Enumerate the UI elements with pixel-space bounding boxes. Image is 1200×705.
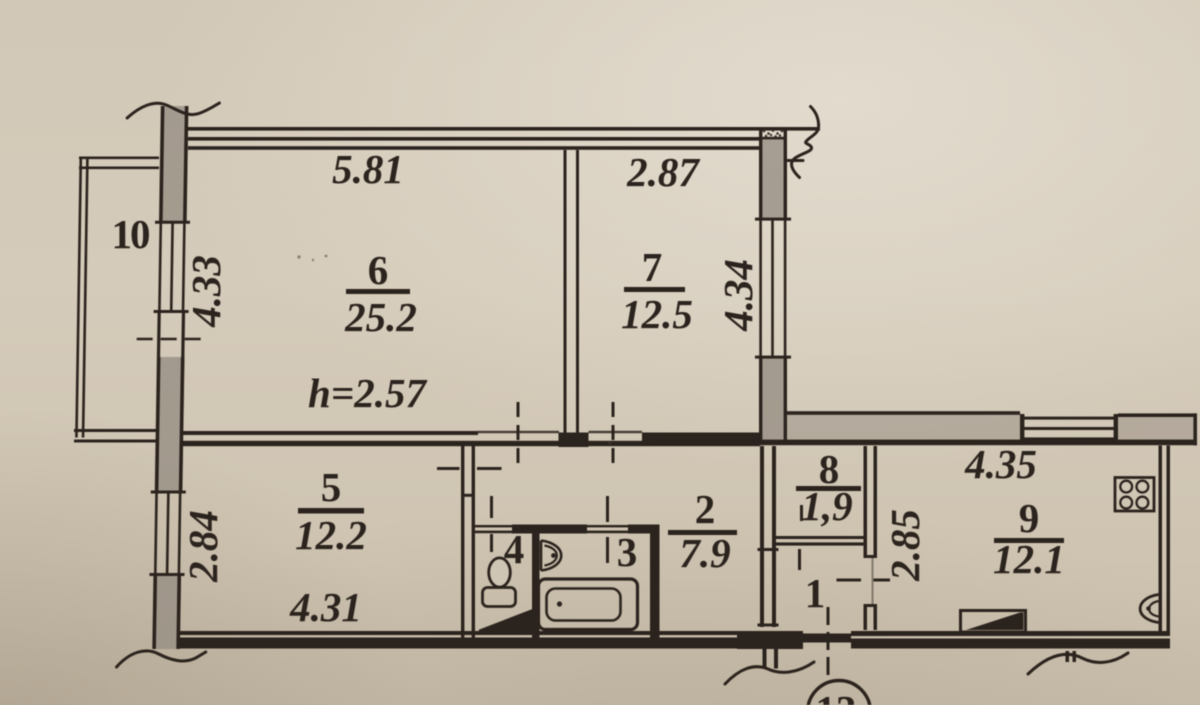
svg-text:2.87: 2.87 xyxy=(626,149,700,195)
svg-text:4.31: 4.31 xyxy=(289,584,362,630)
svg-text:h=2.57: h=2.57 xyxy=(308,370,427,416)
svg-text:13: 13 xyxy=(816,687,857,705)
svg-text:10: 10 xyxy=(112,211,150,257)
svg-text:1,9: 1,9 xyxy=(801,483,852,529)
svg-text:1: 1 xyxy=(805,570,826,616)
svg-text:12.5: 12.5 xyxy=(621,291,693,337)
svg-text:4.34: 4.34 xyxy=(715,259,761,332)
svg-text:25.2: 25.2 xyxy=(344,294,417,340)
svg-text:2.84: 2.84 xyxy=(180,510,226,583)
svg-text:12.2: 12.2 xyxy=(295,512,367,558)
svg-text:5.81: 5.81 xyxy=(332,146,404,192)
svg-text:4.33: 4.33 xyxy=(183,255,229,328)
svg-text:4: 4 xyxy=(504,526,525,572)
svg-text:7.9: 7.9 xyxy=(679,530,730,576)
svg-text:7: 7 xyxy=(642,244,663,290)
svg-text:2: 2 xyxy=(695,486,716,532)
svg-text:6: 6 xyxy=(368,247,389,293)
svg-text:3: 3 xyxy=(617,529,638,575)
svg-text:9: 9 xyxy=(1019,495,1040,541)
svg-text:12.1: 12.1 xyxy=(993,536,1065,582)
svg-text:5: 5 xyxy=(321,464,342,510)
svg-text:4.35: 4.35 xyxy=(964,441,1037,487)
svg-text:2.85: 2.85 xyxy=(882,509,928,582)
